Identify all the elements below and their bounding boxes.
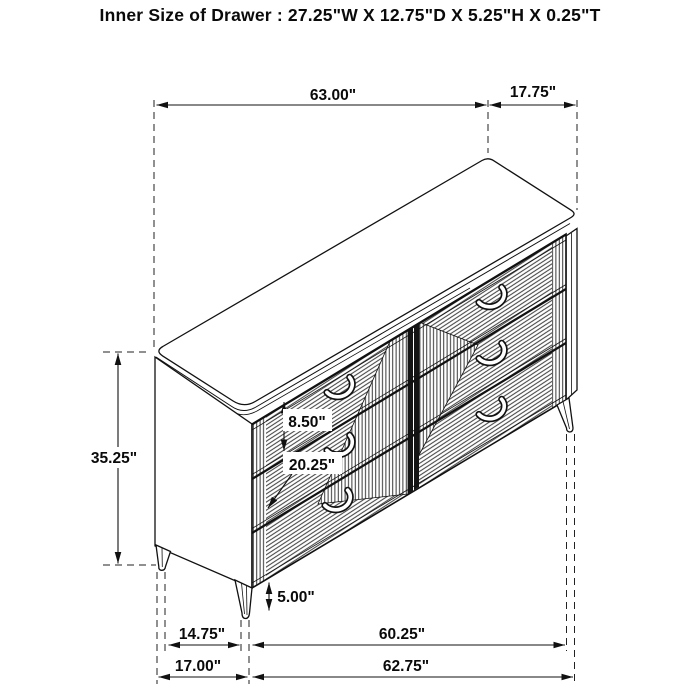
dim-label-top-depth: 17.75" xyxy=(510,84,556,101)
right-edge-vertical-hatch xyxy=(552,234,566,408)
dimension-diagram-page: Inner Size of Drawer : 27.25"W X 12.75"D… xyxy=(0,0,700,700)
dresser-dimension-drawing: 63.00" 17.75" 35.25" 8.50" 20.25" 5.00" … xyxy=(0,0,700,700)
dresser-cabinet xyxy=(155,159,577,619)
dim-label-base-depth-inner: 14.75" xyxy=(179,626,225,643)
dim-label-base-depth: 17.00" xyxy=(175,658,221,675)
left-edge-vertical-hatch xyxy=(252,416,266,589)
dim-label-leg-height: 5.00" xyxy=(277,589,315,606)
dim-label-height: 35.25" xyxy=(91,450,137,467)
dim-label-base-width-inner: 60.25" xyxy=(379,626,425,643)
leg-front-right xyxy=(557,398,573,432)
dim-label-drawer-opening: 20.25" xyxy=(289,457,335,474)
leg-front-left-line-2 xyxy=(247,586,248,616)
dim-label-base-width: 62.75" xyxy=(383,658,429,675)
dim-label-drawer-front-height: 8.50" xyxy=(288,414,326,431)
dim-label-top-width: 63.00" xyxy=(310,87,356,104)
